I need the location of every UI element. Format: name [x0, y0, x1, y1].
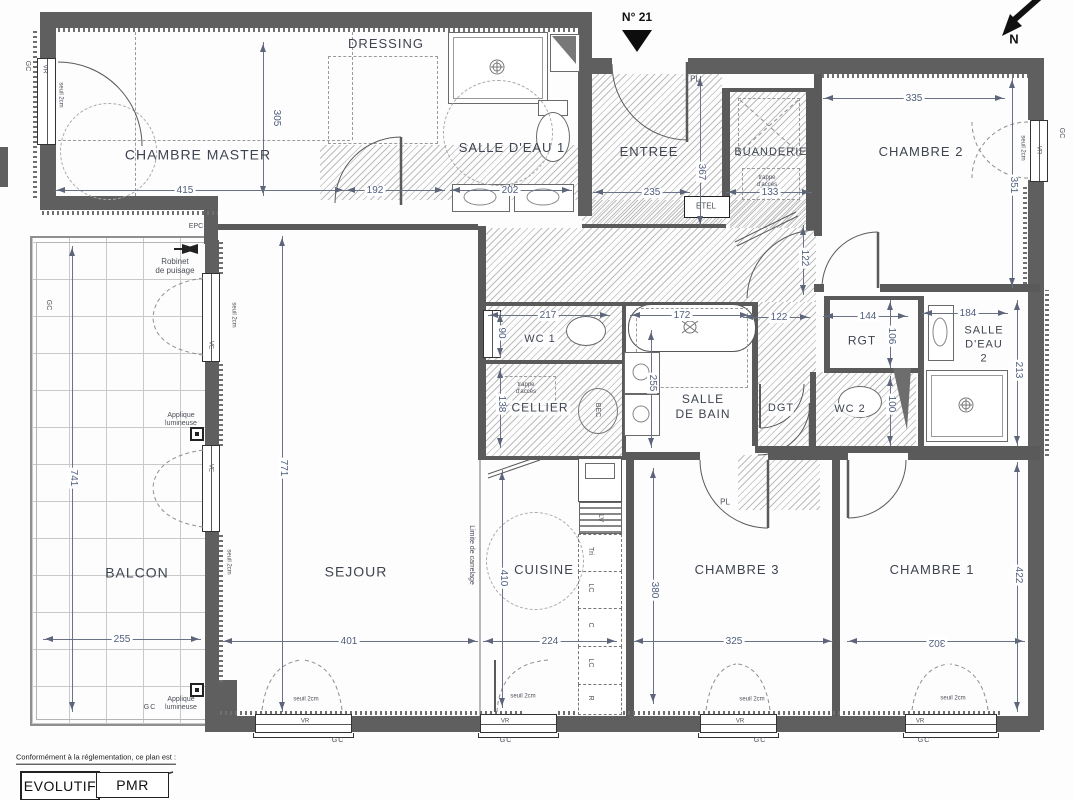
dim-label: 224: [540, 637, 561, 647]
dim-line-415: [55, 190, 345, 191]
room-label-sejour: SEJOUR: [325, 563, 388, 581]
corner-shelf: [550, 34, 580, 72]
seuil-label: seuil 2cm: [230, 302, 237, 327]
room-label-entree: ENTREE: [620, 144, 679, 160]
seuil-label: seuil 2cm: [940, 696, 965, 703]
vr-label: VR: [41, 64, 48, 73]
hatch-corridor-main: [486, 228, 816, 302]
insulation-strip: [219, 362, 223, 446]
kitchen-module-tri: [578, 534, 622, 572]
lv-label: LV: [596, 514, 604, 522]
gc-label: GC: [500, 737, 513, 745]
room-label-chambre-1: CHAMBRE 1: [890, 562, 975, 578]
window-cuisine: [480, 714, 557, 733]
wall-sde2-left: [918, 296, 924, 446]
dim-label: 255: [647, 373, 657, 394]
seuil-label: seuil 2cm: [225, 549, 232, 574]
bec-label: BEC: [593, 403, 601, 417]
dim-label: 217: [538, 311, 559, 321]
dim-label: 771: [278, 458, 288, 479]
vr-label: VR: [916, 719, 924, 726]
limite-carrelage-line: [479, 460, 481, 716]
ve-label: VE: [207, 341, 214, 349]
kitchen-module-lc2: [578, 646, 622, 685]
wall-ch2-left: [814, 74, 822, 236]
door-arc-chambre1: [848, 460, 906, 518]
wall-ch3-top-b: [768, 452, 835, 460]
pl-label: PL: [720, 497, 730, 506]
seuil-label: seuil 2cm: [739, 697, 764, 704]
vr-label: VR: [501, 719, 509, 726]
trappe-label: trappe d'accès: [757, 175, 777, 189]
r-label: R: [586, 695, 594, 700]
wall: [204, 196, 218, 244]
wall-ch3-ch1: [832, 452, 840, 716]
dim-label: 401: [339, 637, 360, 647]
dim-label: 122: [799, 248, 809, 269]
window-swing-chambre1: [912, 664, 988, 710]
wall: [688, 58, 1040, 74]
north-label: N: [1009, 33, 1018, 48]
kitchen-sink-bowl: [585, 463, 615, 479]
dim-label: 335: [904, 94, 925, 104]
evolutif-box: EVOLUTIF: [20, 771, 100, 800]
seuil-label: seuil 2cm: [57, 82, 64, 107]
dim-label: 192: [365, 186, 386, 196]
dim-label: 213: [1013, 360, 1023, 381]
room-label-chambre-2: CHAMBRE 2: [879, 144, 964, 160]
room-label-dgt: DGT: [768, 402, 794, 416]
dim-label: 100: [886, 394, 896, 415]
tri-label: Tri: [586, 547, 594, 555]
gc-label: GC: [332, 737, 345, 745]
robinet-label: Robinet de puisage: [155, 257, 194, 275]
door-arc-chambre2: [822, 232, 878, 288]
seuil-label: seuil 2cm: [293, 697, 318, 704]
entrance-triangle: [622, 30, 652, 52]
wall-buanderie-top: [722, 88, 816, 92]
room-label-salle-eau-1: SALLE D'EAU 1: [459, 140, 566, 156]
gc-label: GC: [23, 61, 31, 72]
plan-number: N° 21: [622, 11, 652, 25]
gc-label: GC: [918, 737, 931, 745]
dim-label: 741: [68, 468, 78, 489]
insulation-strip: [219, 532, 223, 682]
room-label-salle-de-bain: SALLE DE BAIN: [675, 392, 730, 422]
dim-label: 172: [672, 311, 693, 321]
wall: [555, 716, 700, 732]
room-label-dressing: DRESSING: [348, 36, 424, 52]
wall-rgt-bottom: [824, 368, 920, 373]
insulation-strip: [219, 240, 223, 274]
applique-label: Applique lumineuse: [165, 696, 197, 712]
balcony-tiles: [30, 236, 218, 726]
wall-corner: [205, 680, 237, 732]
room-label-salle-eau-2: SALLE D'EAU 2: [964, 324, 1003, 365]
etel-label: ETEL: [696, 201, 716, 210]
turning-circle-sde1: [443, 80, 553, 186]
wall-cuisine-ch3: [626, 452, 634, 716]
wall: [814, 284, 824, 292]
dim-label: 325: [724, 637, 745, 647]
gc-bracket: [698, 733, 779, 738]
room-label-cuisine: CUISINE: [514, 562, 574, 578]
hatch-dgt: [756, 302, 816, 446]
wall: [205, 360, 219, 445]
wall: [995, 716, 1040, 732]
room-label-chambre-master: CHAMBRE MASTER: [125, 146, 271, 164]
wall: [588, 58, 612, 74]
dim-label: 184: [958, 309, 979, 319]
room-label-wc-1: WC 1: [522, 333, 558, 347]
ve-label: VE: [207, 464, 214, 472]
kitchen-module-lc1: [578, 571, 622, 609]
dim-label: 138: [496, 394, 506, 415]
seuil-label: seuil 2cm: [1019, 135, 1026, 160]
room-label-rgt: RGT: [848, 334, 876, 349]
vr-label: VR: [736, 719, 744, 726]
dim-label: 415: [175, 186, 196, 196]
gc-label: GC: [754, 737, 767, 745]
dim-label: 302: [927, 637, 948, 647]
wall-ch1-top: [908, 452, 1040, 460]
dim-line-192: [345, 190, 445, 191]
room-label-cellier: CELLIER: [509, 401, 570, 416]
wall: [40, 12, 56, 58]
dim-label: 255: [112, 635, 133, 645]
hatch-ch3-closet: [738, 455, 820, 510]
shower-sde2: [926, 370, 1008, 442]
lc-label: LC: [586, 659, 594, 668]
wall-sejour-top: [218, 224, 478, 230]
dim-line-410: [502, 470, 503, 708]
epc-label: EPC: [189, 223, 203, 231]
dim-label: 367: [696, 162, 706, 183]
gc-label: GC: [1057, 128, 1065, 139]
insulation-strip: [1023, 186, 1027, 284]
kitchen-module-r: [578, 684, 622, 715]
dim-label: 122: [769, 313, 790, 323]
gc-label: GC: [44, 300, 52, 311]
pl-label: PL: [690, 74, 700, 83]
c-label: C: [586, 622, 594, 627]
balcony-door-2: [202, 445, 220, 532]
room-label-buanderie: BUANDERIE: [734, 146, 807, 160]
wall-wc1-top: [482, 302, 626, 306]
balcony-inner-border: [36, 242, 212, 720]
wall: [205, 240, 219, 273]
dim-line-422: [1017, 462, 1018, 712]
gc-label: GC: [144, 704, 157, 712]
dim-label: 305: [271, 108, 281, 129]
wall-wc2-left: [810, 372, 816, 446]
wall-wc1-bottom: [482, 360, 626, 364]
vr-label: VR: [1035, 146, 1042, 154]
dim-label: 90: [496, 325, 506, 340]
limite-carrelage-label: Limite de carrelage: [467, 525, 475, 585]
dim-label: 380: [649, 580, 659, 601]
dim-label: 133: [760, 188, 781, 198]
wall: [40, 12, 588, 28]
pmr-box: PMR: [96, 772, 169, 798]
lc-label: LC: [586, 584, 594, 593]
footer-note: Conformément à la réglementation, ce pla…: [16, 754, 176, 765]
wall-rgt-top: [824, 296, 920, 300]
toilet-wc1: [566, 316, 606, 346]
wall-ch2-bottom: [880, 284, 1040, 292]
gc-bracket: [478, 733, 559, 738]
wall: [40, 196, 218, 210]
applique-label: Applique lumineuse: [165, 412, 197, 428]
floor-plan: 305 415 192 202 367 235 133 335 351 741 …: [0, 0, 1074, 800]
dim-label: 202: [500, 186, 521, 196]
wall: [578, 12, 592, 216]
dim-label: 144: [858, 312, 879, 322]
wall-stub: [0, 147, 8, 187]
wall: [775, 716, 905, 732]
insulation-strip: [822, 74, 1028, 78]
wall: [350, 716, 480, 732]
wall: [1028, 58, 1044, 120]
dim-line-305: [263, 42, 264, 196]
room-label-chambre-3: CHAMBRE 3: [695, 562, 780, 578]
north-arrow-shaft: [1014, 0, 1048, 20]
wall-ch3-top-a: [630, 452, 700, 460]
sdb-sink-2: [624, 394, 660, 436]
wall: [840, 452, 848, 460]
wall-corridor-top: [582, 224, 726, 228]
dim-label: 106: [886, 326, 896, 347]
v-label: VR: [301, 719, 309, 726]
dim-label: 235: [642, 188, 663, 198]
insulation-strip: [1045, 290, 1049, 456]
wall-rgt-left: [824, 296, 830, 372]
seuil-label: seuil 2cm: [510, 694, 535, 701]
trappe-label: trappe d'accès: [516, 382, 536, 396]
dim-label: 422: [1013, 565, 1023, 586]
insulation-strip: [42, 211, 218, 215]
dressing-wardrobe: [328, 56, 438, 144]
room-label-balcon: BALCON: [105, 564, 169, 582]
dim-label: 351: [1008, 175, 1018, 196]
dim-label: 410: [498, 568, 508, 589]
room-label-wc-2: WC 2: [834, 403, 866, 417]
